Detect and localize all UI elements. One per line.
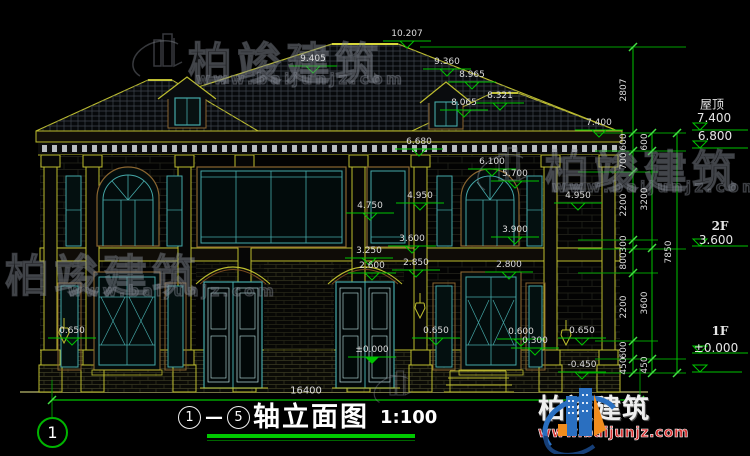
dim-label: 0.650	[423, 326, 449, 336]
brand-logo: 柏竣建筑 www.baijunjz.com	[536, 380, 750, 456]
cornice	[36, 131, 622, 155]
dim-label: 3.900	[502, 225, 528, 235]
overall-width-dim: 16400	[290, 386, 322, 397]
chain-dim: 700	[619, 152, 629, 169]
chain-dim: 800	[619, 252, 629, 269]
second-floor-windows	[66, 167, 542, 247]
axis-circle-start: 1	[178, 406, 201, 429]
floor2-label: 2F	[712, 219, 729, 233]
chain-dim: 2200	[619, 296, 629, 319]
dim-label: 2.800	[496, 260, 522, 270]
title-underline-thin	[207, 440, 415, 441]
chain-dim: 600	[640, 133, 650, 150]
dim-label: 6.680	[406, 137, 432, 147]
dim-label: 7.400	[586, 118, 612, 128]
dim-label: 2.600	[359, 261, 385, 271]
dim-label: 8.321	[487, 91, 513, 101]
floor1-label: 1F	[712, 324, 729, 338]
dim-label: 0.650	[569, 326, 595, 336]
dim-label: -0.450	[567, 360, 596, 370]
chain-dim: 450	[619, 357, 629, 374]
chain-dim: 300	[619, 235, 629, 252]
chain-dim: 600	[619, 341, 629, 358]
floor2-value: 3.600	[699, 233, 733, 247]
cad-canvas: 柏竣建筑 www.baijunjz.com 柏竣建筑 www.baijunjz.…	[0, 0, 750, 456]
chain-dim: 2807	[619, 79, 629, 102]
chain-dim-total: 7850	[664, 241, 674, 264]
dim-label: 2.850	[403, 258, 429, 268]
floor1-value: ±0.000	[694, 341, 738, 355]
dim-label: 6.100	[479, 157, 505, 167]
brand-logo-icon	[536, 380, 628, 454]
chain-dim: 450	[640, 356, 650, 373]
dim-label: 9.360	[434, 57, 460, 67]
roof-level-label: 屋顶	[700, 96, 724, 113]
dim-label: ±0.000	[355, 345, 388, 355]
dim-label: 0.650	[59, 326, 85, 336]
eave-level-value: 6.800	[698, 129, 732, 143]
dim-label: 8.965	[459, 70, 485, 80]
chain-dim: 3600	[640, 292, 650, 315]
dim-label: 9.405	[300, 54, 326, 64]
dim-label: 4.950	[407, 191, 433, 201]
dim-label: 0.300	[522, 336, 548, 346]
dim-label: 3.250	[356, 246, 382, 256]
axis-circle-end: 5	[227, 406, 250, 429]
dim-label: 4.950	[565, 191, 591, 201]
chain-dim: 3200	[640, 188, 650, 211]
dim-label: 5.700	[502, 169, 528, 179]
title-dash: —	[205, 407, 223, 428]
watermark-url: www.baijunjz.com	[196, 70, 405, 88]
dim-label: 8.065	[451, 98, 477, 108]
dim-label: 10.207	[391, 29, 423, 39]
title-scale: 1:100	[380, 407, 437, 428]
drawing-title: 1 — 5 轴立面图 1:100	[178, 404, 437, 431]
roof-level-value: 7.400	[697, 111, 731, 125]
chain-dim: 2200	[619, 194, 629, 217]
dim-label: 3.600	[399, 234, 425, 244]
dim-label: 4.750	[357, 201, 383, 211]
chain-dim: 600	[619, 133, 629, 150]
title-underline	[207, 434, 415, 438]
title-text: 轴立面图	[253, 404, 369, 431]
watermark-url: www.baijunjz.com	[68, 282, 277, 300]
axis-bubble-1: 1	[37, 417, 68, 448]
